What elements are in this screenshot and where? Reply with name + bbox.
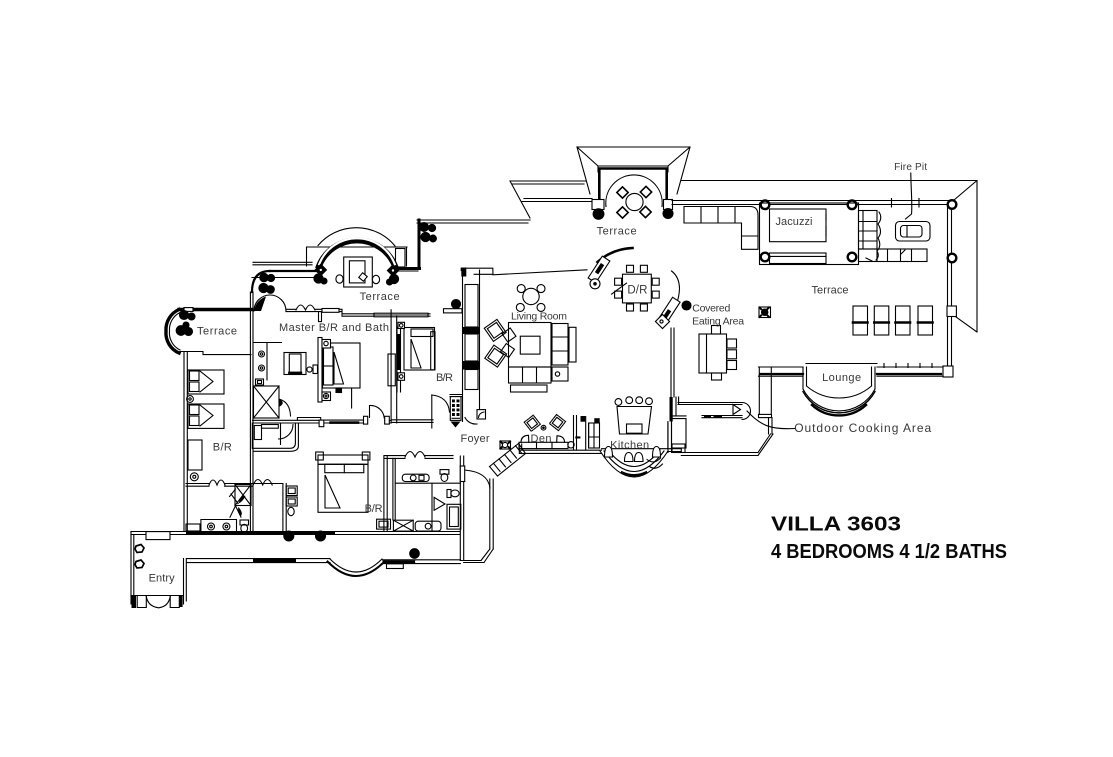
svg-text:Foyer: Foyer [461, 433, 490, 445]
svg-text:Eating Area: Eating Area [692, 316, 744, 328]
svg-text:Kitchen: Kitchen [610, 440, 649, 452]
svg-text:Living Room: Living Room [511, 310, 567, 322]
svg-text:Covered: Covered [692, 303, 730, 315]
svg-text:Outdoor Cooking Area: Outdoor Cooking Area [794, 421, 931, 435]
svg-text:Terrace: Terrace [197, 326, 237, 338]
svg-text:Terrace: Terrace [597, 226, 637, 238]
svg-text:Entry: Entry [149, 573, 176, 585]
svg-text:Terrace: Terrace [812, 285, 849, 297]
svg-text:Master B/R and Bath: Master B/R and Bath [279, 322, 389, 334]
svg-text:Jacuzzi: Jacuzzi [776, 216, 813, 228]
svg-text:Fire Pit: Fire Pit [894, 162, 927, 173]
svg-text:VILLA 3603: VILLA 3603 [771, 514, 901, 536]
svg-text:B/R: B/R [436, 372, 453, 384]
svg-text:B/R: B/R [365, 503, 383, 515]
svg-text:B/R: B/R [213, 442, 232, 454]
svg-text:D/R: D/R [627, 285, 647, 297]
svg-text:Terrace: Terrace [360, 291, 400, 303]
svg-text:4 BEDROOMS 4 1/2 BATHS: 4 BEDROOMS 4 1/2 BATHS [771, 541, 1007, 563]
svg-text:Lounge: Lounge [822, 372, 861, 384]
svg-text:Den: Den [531, 433, 552, 445]
